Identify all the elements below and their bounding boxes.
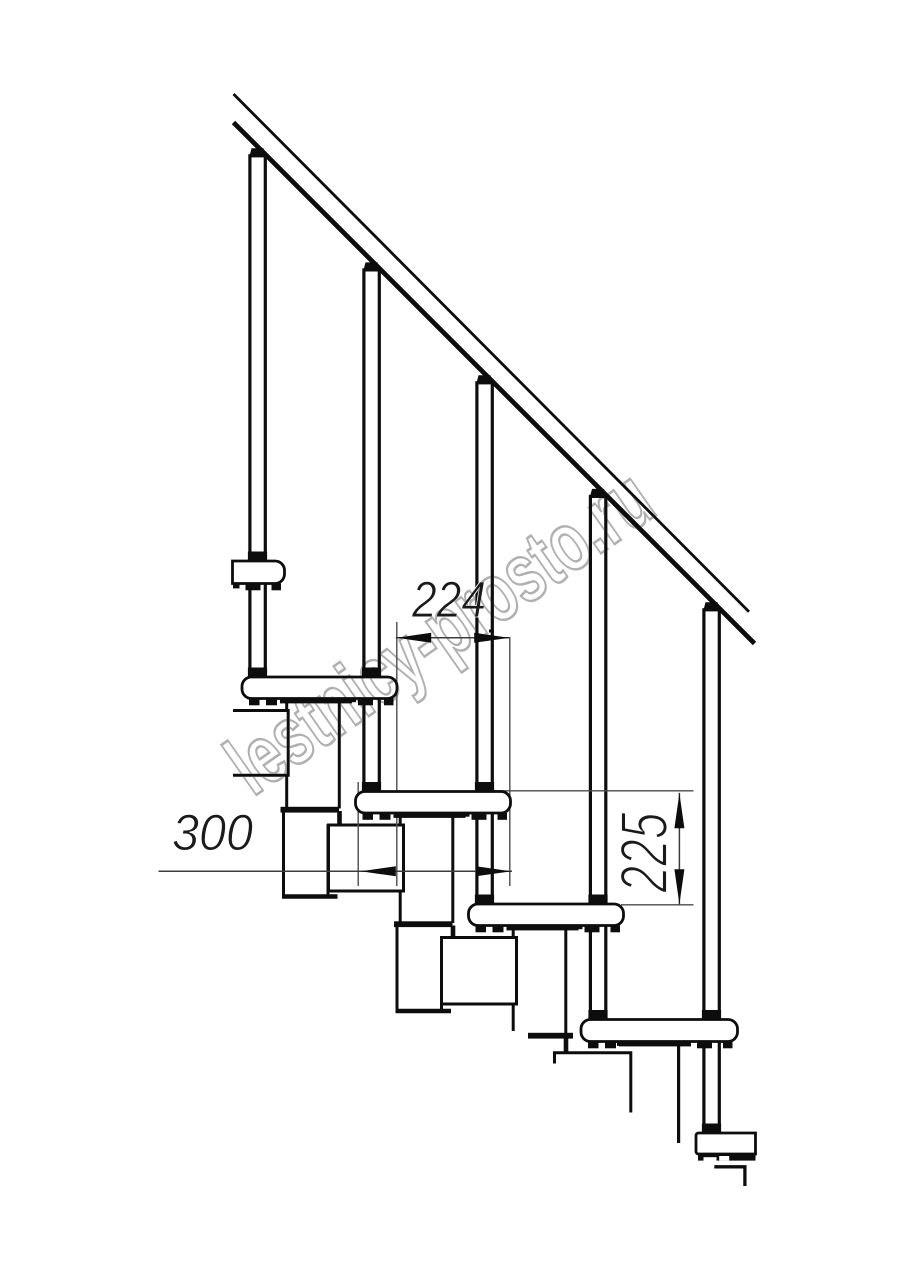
svg-text:225: 225	[607, 812, 682, 893]
svg-text:300: 300	[172, 804, 253, 861]
